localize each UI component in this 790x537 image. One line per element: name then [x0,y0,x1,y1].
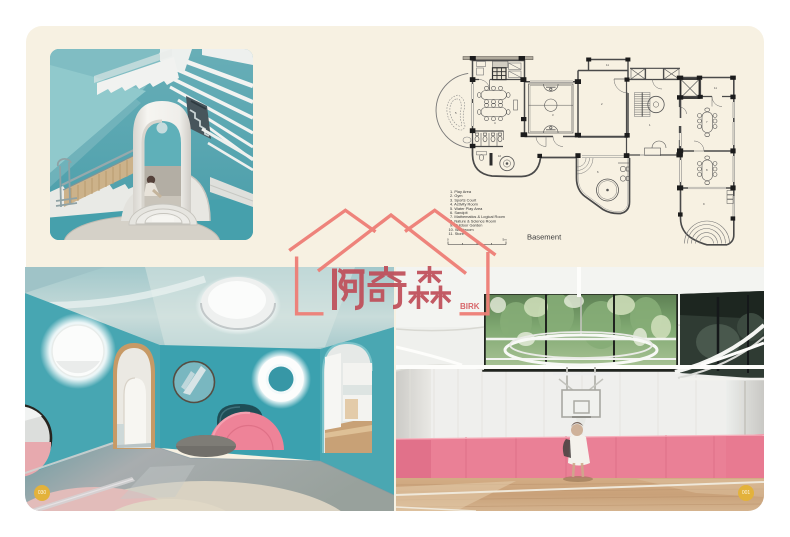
svg-text:2: 2 [601,102,603,106]
svg-text:5m: 5m [503,238,508,242]
svg-text:4: 4 [494,121,496,125]
svg-text:5: 5 [455,111,457,115]
svg-text:6: 6 [597,170,599,174]
svg-text:3: 3 [552,113,554,117]
svg-text:11: 11 [606,63,609,67]
svg-text:Basement: Basement [527,233,562,242]
svg-text:7: 7 [706,120,708,124]
svg-text:9: 9 [703,202,705,206]
svg-text:1: 1 [649,123,651,127]
svg-text:10: 10 [498,154,502,158]
svg-text:8: 8 [706,168,708,172]
svg-text:BIRK: BIRK [460,302,480,311]
svg-text:11: 11 [714,86,717,90]
